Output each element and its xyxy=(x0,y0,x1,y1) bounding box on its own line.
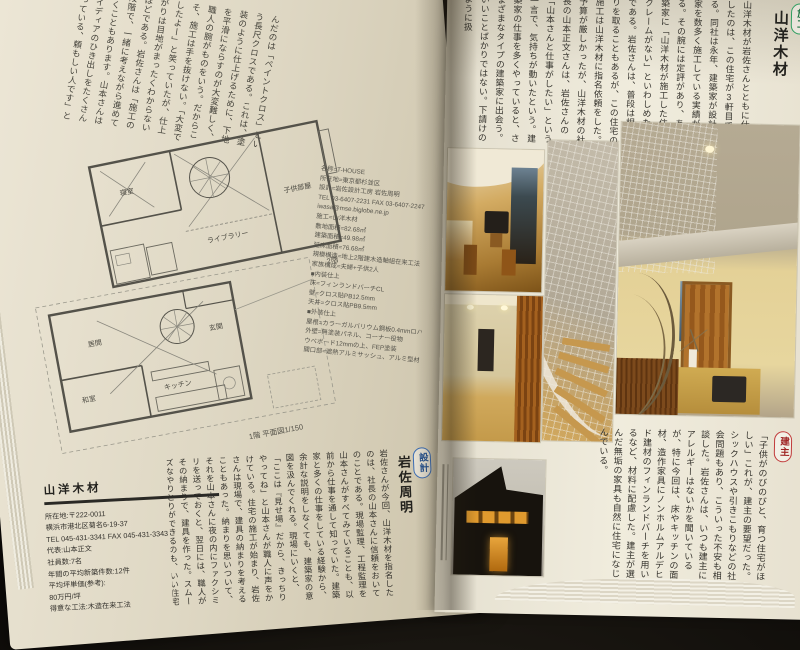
room-label-library: ライブラリー xyxy=(206,228,249,245)
lit-entrance xyxy=(489,537,508,571)
magazine-spread: んだのは「ペイントクロス」という長尺クロスである。これは、塗装のように仕上げるた… xyxy=(0,0,800,600)
downlight xyxy=(501,305,508,310)
right-page: 施工 山洋木材 山洋木材が岩佐さんとともに仕事をしたのは、この住宅が3軒目である… xyxy=(434,0,800,620)
room-label-tatami: 和室 xyxy=(81,394,96,405)
designer-section-header: 設計 岩佐周明 xyxy=(393,447,437,600)
spiral-stair-icon xyxy=(186,154,233,201)
photo-tatami-room xyxy=(442,294,543,442)
television xyxy=(484,211,508,233)
floor-plan-1f: 居間 和室 キッチン 玄関 1階 平面図1/150 xyxy=(33,255,345,482)
spiral-stair-icon xyxy=(157,307,197,347)
floor-plan-1f-drawing: 居間 和室 キッチン 玄関 1階 平面図1/150 xyxy=(33,255,345,482)
photo-spiral-staircase xyxy=(542,140,618,441)
builder-section-header: 施工 山洋木材 xyxy=(769,3,800,79)
ceiling-beam xyxy=(445,294,517,306)
room-label-bedroom: 寝室 xyxy=(119,186,135,198)
room-label-entrance: 玄関 xyxy=(208,321,223,332)
client-body-text: 「子供がのびのびと、育つ住宅がほしい」これが、建主の要望だった。シックハウスや引… xyxy=(593,427,770,585)
plan-caption-1f: 1階 平面図1/150 xyxy=(248,421,304,441)
appliance xyxy=(712,376,747,403)
project-spec-list: 名称=T-HOUSE 所在地=東京都杉並区 設計=岩佐設計工房 岩佐周明 TEL… xyxy=(303,164,437,366)
chair xyxy=(501,249,516,275)
left-page: んだのは「ペイントクロス」という長尺クロスである。これは、塗装のように仕上げるた… xyxy=(0,0,491,650)
flower-branch xyxy=(679,329,709,352)
room-label-kitchen: キッチン xyxy=(163,379,192,392)
photo-caption-illegible xyxy=(441,464,451,560)
downlight xyxy=(705,146,714,153)
downlight xyxy=(467,305,474,310)
vase xyxy=(689,349,697,367)
client-section: 建主 「子供がのびのびと、育つ住宅がほしい」これが、建主の要望だった。シックハウ… xyxy=(549,426,792,585)
designer-name: 岩佐周明 xyxy=(394,455,419,601)
builder-name: 山洋木材 xyxy=(769,10,791,78)
tv-stand xyxy=(490,233,502,247)
wood-slat-door xyxy=(514,296,543,443)
designer-tag-badge: 設計 xyxy=(412,447,431,479)
client-section-header: 建主 xyxy=(771,431,792,585)
client-tag-badge: 建主 xyxy=(774,431,793,462)
room-label-living: 居間 xyxy=(87,339,102,349)
builder-company-info: 山洋木材 所在地:〒222-0011 横浜市港北区菊名6-19-37 TEL 0… xyxy=(43,472,250,615)
photo-stair-hall-interior xyxy=(616,122,800,418)
chair xyxy=(463,245,477,275)
room-label-kids: 子供部屋 xyxy=(283,181,312,195)
builder-tag-badge: 施工 xyxy=(791,3,800,34)
hanging-scroll xyxy=(477,329,494,371)
lit-window-band xyxy=(466,511,528,524)
photo-exterior-night xyxy=(451,458,545,576)
photo-dining-room xyxy=(445,148,544,292)
